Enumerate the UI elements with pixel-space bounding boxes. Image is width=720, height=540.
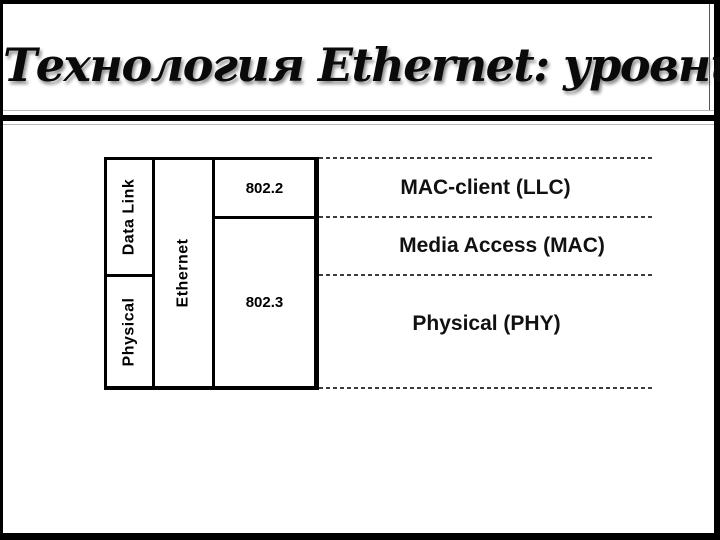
ethernet-cell: Ethernet: [155, 160, 212, 386]
title-box-right-border: [709, 4, 710, 110]
osi-physical-cell: Physical: [107, 277, 152, 386]
osi-data-link-label: Data Link: [121, 179, 139, 256]
slide-title: Технология Ethernet: уровни BRM OSI: [3, 22, 714, 108]
slide-canvas: { "slide": { "title": "Технология Ethern…: [0, 0, 720, 540]
dashed-line-llc-mac: [319, 216, 652, 218]
dashed-line-top: [319, 157, 652, 159]
slide-background: Технология Ethernet: уровни BRM OSI Data…: [3, 4, 714, 533]
sublayer-llc-label: MAC-client (LLC): [319, 175, 652, 201]
ethernet-label: Ethernet: [175, 239, 193, 308]
title-divider-thick: [3, 115, 714, 121]
dashed-line-mac-phy: [319, 274, 652, 276]
title-divider-thin-bottom: [3, 124, 714, 125]
standard-8023-label: 802.3: [246, 294, 284, 311]
osi-data-link-cell: Data Link: [107, 160, 152, 274]
standard-8023-cell: 802.3: [215, 219, 314, 386]
dashed-line-bottom: [319, 387, 652, 389]
title-divider-thin-top: [3, 110, 714, 111]
standard-8022-cell: 802.2: [215, 160, 314, 216]
standard-8022-label: 802.2: [246, 180, 284, 197]
osi-physical-label: Physical: [121, 297, 139, 366]
sublayer-mac-label: Media Access (MAC): [332, 233, 672, 259]
sublayer-phy-label: Physical (PHY): [320, 311, 653, 337]
